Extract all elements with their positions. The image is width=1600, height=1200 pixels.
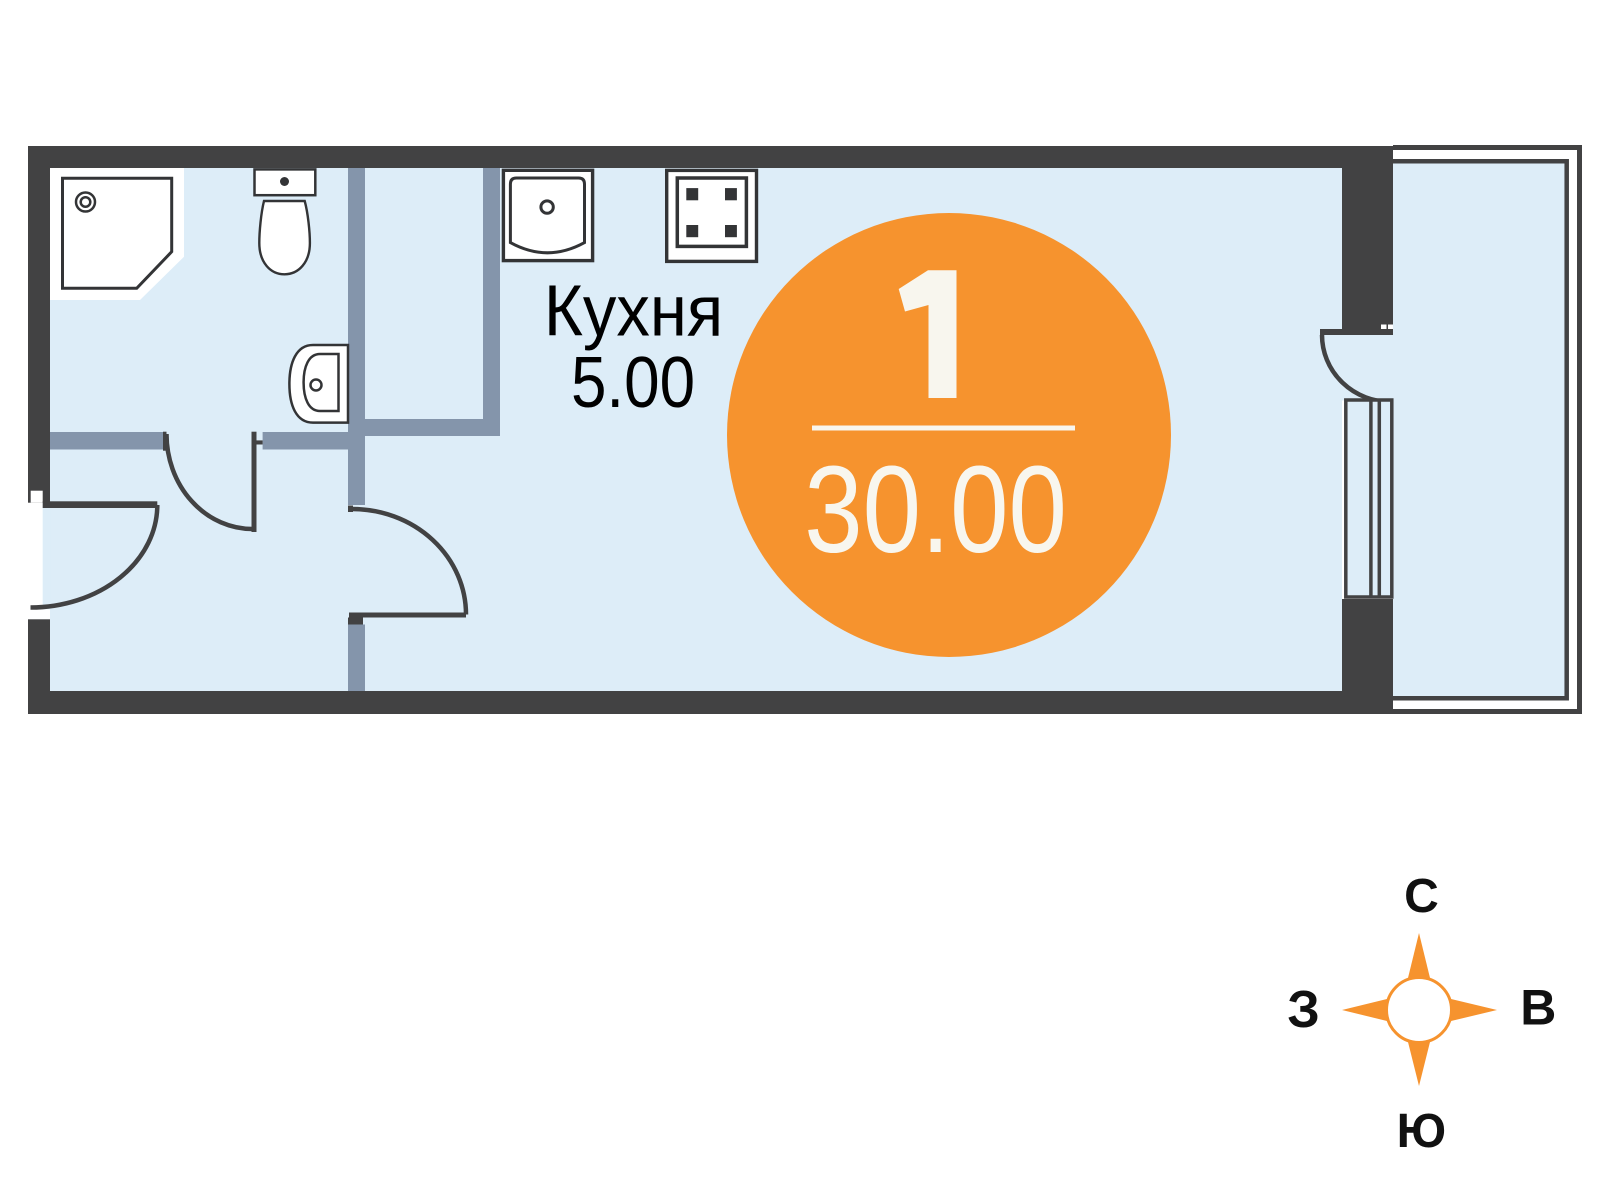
svg-text:5.00: 5.00 xyxy=(571,342,695,423)
svg-text:З: З xyxy=(1287,981,1320,1039)
svg-text:С: С xyxy=(1404,870,1439,923)
svg-text:Ю: Ю xyxy=(1397,1105,1447,1158)
svg-text:В: В xyxy=(1520,980,1556,1036)
svg-text:Кухня: Кухня xyxy=(544,270,723,351)
svg-text:30.00: 30.00 xyxy=(804,441,1067,579)
